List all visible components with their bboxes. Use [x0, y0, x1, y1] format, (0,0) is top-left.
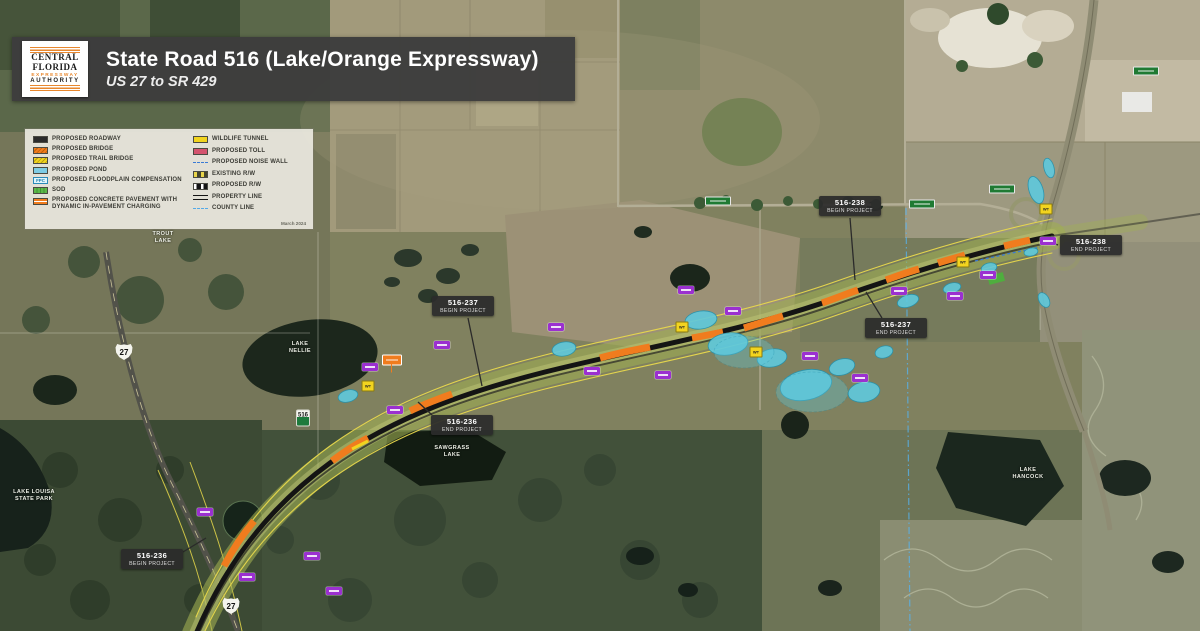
- pond-id-label: [197, 508, 213, 516]
- page-subtitle: US 27 to SR 429: [106, 74, 539, 90]
- street-name-sign: [909, 200, 935, 209]
- pond-id-label: [852, 374, 868, 382]
- legend-swatch-sod-icon: [33, 187, 48, 194]
- legend-label: PROPOSED NOISE WALL: [212, 159, 288, 166]
- legend-label: COUNTY LINE: [212, 205, 254, 212]
- state-road-shield: 516: [296, 410, 310, 427]
- legend-swatch-property-line-icon: [193, 195, 208, 200]
- page-title: State Road 516 (Lake/Orange Expressway): [106, 48, 539, 72]
- legend-item: PROPOSED CONCRETE PAVEMENT WITH DYNAMIC …: [33, 197, 193, 211]
- pond-id-label: [891, 287, 907, 295]
- project-number: 516-236: [127, 551, 177, 560]
- pond-id-label: [326, 587, 342, 595]
- legend-item: EXISTING R/W: [193, 171, 308, 178]
- legend-swatch-charging-icon: [33, 198, 48, 205]
- pond-id-label: [362, 363, 378, 371]
- lake-name-label: LAKE LOUISA STATE PARK: [8, 489, 60, 503]
- project-phase: BEGIN PROJECT: [825, 208, 875, 214]
- legend-item: PROPOSED POND: [33, 167, 193, 174]
- pond-id-label: [434, 341, 450, 349]
- pond-id-label: [947, 292, 963, 300]
- legend-swatch-toll-icon: [193, 148, 208, 155]
- legend-item: FPCPROPOSED FLOODPLAIN COMPENSATION: [33, 177, 193, 184]
- legend-label: WILDLIFE TUNNEL: [212, 136, 269, 143]
- legend-item: PROPOSED R/W: [193, 182, 308, 189]
- project-callout: 516-237END PROJECT: [865, 318, 927, 338]
- legend-item: PROPOSED ROADWAY: [33, 136, 193, 143]
- pond-id-label: [387, 406, 403, 414]
- pond-id-label: [802, 352, 818, 360]
- legend-label: PROPOSED TOLL: [212, 148, 265, 155]
- legend-label: PROPERTY LINE: [212, 194, 262, 201]
- project-callout: 516-238END PROJECT: [1060, 235, 1122, 255]
- project-callout: 516-236END PROJECT: [431, 415, 493, 435]
- legend-label: PROPOSED TRAIL BRIDGE: [52, 156, 133, 163]
- street-name-sign: [1133, 67, 1159, 76]
- project-callout: 516-238BEGIN PROJECT: [819, 196, 881, 216]
- legend-label: PROPOSED ROADWAY: [52, 136, 121, 143]
- legend-swatch-roadway-icon: [33, 136, 48, 143]
- project-number: 516-237: [871, 320, 921, 329]
- project-callout: 516-237BEGIN PROJECT: [432, 296, 494, 316]
- project-phase: BEGIN PROJECT: [127, 561, 177, 567]
- legend-swatch-noise-wall-icon: [193, 162, 208, 163]
- legend-swatch-existing-rw-icon: [193, 171, 208, 178]
- legend-label: PROPOSED BRIDGE: [52, 146, 113, 153]
- street-name-sign: [705, 197, 731, 206]
- pond-id-label: [304, 552, 320, 560]
- lake-name-label: TROUT LAKE: [146, 231, 180, 245]
- legend-swatch-county-line-icon: [193, 208, 208, 209]
- street-name-sign: [989, 185, 1015, 194]
- project-phase: END PROJECT: [871, 330, 921, 336]
- legend-label: PROPOSED FLOODPLAIN COMPENSATION: [52, 177, 182, 184]
- wildlife-tunnel-marker: WT: [676, 322, 689, 333]
- project-number: 516-237: [438, 298, 488, 307]
- wildlife-tunnel-marker: WT: [750, 347, 763, 358]
- legend-swatch-trail-bridge-icon: [33, 157, 48, 164]
- legend-column-right: WILDLIFE TUNNELPROPOSED TOLLPROPOSED NOI…: [193, 136, 308, 225]
- legend-swatch-proposed-rw-icon: [193, 183, 208, 190]
- legend-label: EXISTING R/W: [212, 171, 255, 178]
- logo-line2: FLORIDA: [32, 63, 77, 72]
- legend-swatch-fpc-icon: FPC: [33, 177, 48, 184]
- legend-date: March 2024: [281, 221, 306, 226]
- project-map-page: CENTRAL FLORIDA EXPRESSWAY AUTHORITY Sta…: [0, 0, 1200, 631]
- pond-id-label: [548, 323, 564, 331]
- title-banner: CENTRAL FLORIDA EXPRESSWAY AUTHORITY Sta…: [12, 37, 575, 101]
- project-number: 516-238: [825, 198, 875, 207]
- legend-item: PROPOSED BRIDGE: [33, 146, 193, 153]
- cfx-authority-logo: CENTRAL FLORIDA EXPRESSWAY AUTHORITY: [22, 41, 88, 97]
- legend-label: SOD: [52, 187, 65, 194]
- legend-swatch-wildlife-icon: [193, 136, 208, 143]
- legend-label: PROPOSED CONCRETE PAVEMENT WITH DYNAMIC …: [52, 197, 193, 211]
- pond-id-label: [239, 573, 255, 581]
- wildlife-tunnel-marker: WT: [957, 257, 970, 268]
- legend-item: PROPOSED TOLL: [193, 148, 308, 155]
- legend-item: WILDLIFE TUNNEL: [193, 136, 308, 143]
- lake-name-label: SAWGRASS LAKE: [426, 445, 478, 459]
- lake-name-label: LAKE NELLIE: [283, 341, 317, 355]
- map-legend: PROPOSED ROADWAYPROPOSED BRIDGEPROPOSED …: [25, 129, 313, 229]
- logo-stripes-icon: [30, 85, 80, 91]
- legend-item: COUNTY LINE: [193, 205, 308, 212]
- project-phase: END PROJECT: [1066, 247, 1116, 253]
- pond-id-label: [725, 307, 741, 315]
- legend-label: PROPOSED POND: [52, 167, 107, 174]
- pond-id-label: [1040, 237, 1056, 245]
- legend-item: PROPOSED NOISE WALL: [193, 159, 308, 166]
- wildlife-tunnel-marker: WT: [1040, 204, 1053, 215]
- legend-item: PROPERTY LINE: [193, 194, 308, 201]
- project-callout: 516-236BEGIN PROJECT: [121, 549, 183, 569]
- project-number: 516-236: [437, 417, 487, 426]
- legend-label: PROPOSED R/W: [212, 182, 261, 189]
- legend-swatch-bridge-icon: [33, 147, 48, 154]
- lake-name-label: LAKE HANCOCK: [1005, 467, 1051, 481]
- legend-item: PROPOSED TRAIL BRIDGE: [33, 156, 193, 163]
- pond-id-label: [584, 367, 600, 375]
- legend-column-left: PROPOSED ROADWAYPROPOSED BRIDGEPROPOSED …: [33, 136, 193, 225]
- legend-swatch-pond-icon: [33, 167, 48, 174]
- logo-line4: AUTHORITY: [30, 78, 79, 84]
- project-phase: BEGIN PROJECT: [438, 308, 488, 314]
- project-phase: END PROJECT: [437, 427, 487, 433]
- pond-id-label: [678, 286, 694, 294]
- pond-id-label: [980, 271, 996, 279]
- banner-text: State Road 516 (Lake/Orange Expressway) …: [106, 48, 539, 90]
- wildlife-tunnel-marker: WT: [362, 381, 375, 392]
- project-number: 516-238: [1066, 237, 1116, 246]
- legend-item: SOD: [33, 187, 193, 194]
- bridge-note-callout: [382, 355, 402, 366]
- pond-id-label: [655, 371, 671, 379]
